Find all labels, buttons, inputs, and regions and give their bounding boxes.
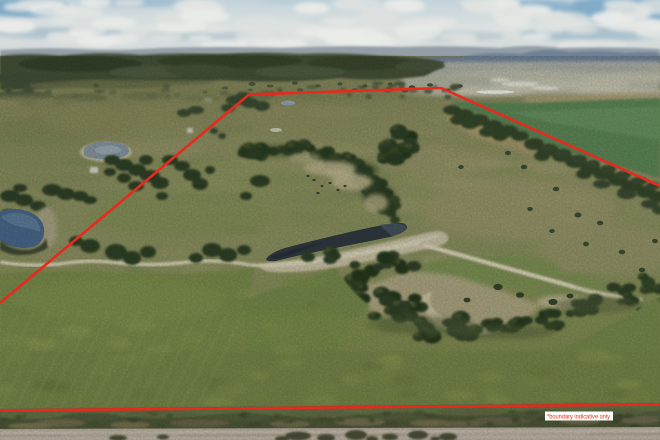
svg-text:*boundary indicative only: *boundary indicative only bbox=[547, 414, 611, 421]
